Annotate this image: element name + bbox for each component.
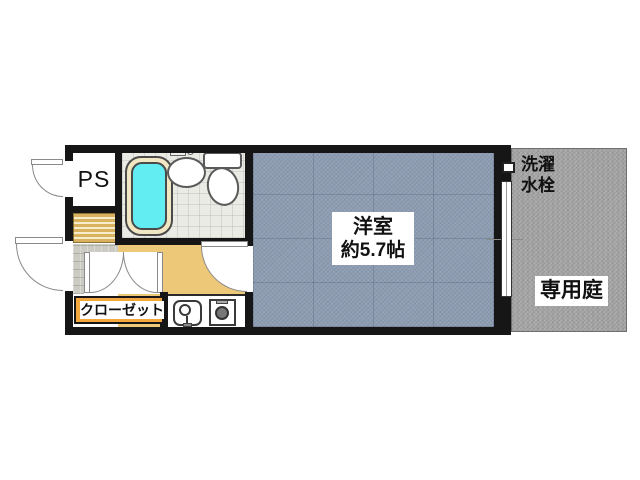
entry-steps bbox=[73, 213, 117, 243]
faucet-stem-icon bbox=[186, 316, 188, 323]
wall-divider-upper bbox=[245, 153, 253, 246]
closet-label-box: クローゼット bbox=[74, 296, 164, 324]
washbasin-icon bbox=[167, 157, 206, 188]
bathtub-icon bbox=[125, 156, 173, 236]
ps-door-swing-arc bbox=[32, 165, 63, 197]
stove-icon bbox=[209, 299, 236, 326]
laundry-faucet-label: 洗濯 水栓 bbox=[521, 154, 555, 196]
wall-ps-bottom bbox=[65, 206, 122, 213]
wall-left-middle bbox=[65, 197, 73, 241]
closet-label: クローゼット bbox=[80, 301, 164, 319]
entrance-door-panel bbox=[15, 237, 63, 244]
closet-door-right-panel bbox=[157, 252, 163, 293]
kitchen-door-panel bbox=[201, 241, 248, 247]
window-sash-line bbox=[506, 182, 507, 296]
entrance-door-swing-arc bbox=[16, 244, 63, 291]
bathtub-water bbox=[131, 162, 167, 230]
faucet-head-icon bbox=[179, 304, 191, 316]
private-garden-label: 専用庭 bbox=[535, 276, 608, 306]
stove-panel-icon bbox=[216, 300, 228, 304]
pipe-space-label: PS bbox=[73, 153, 115, 206]
laundry-faucet-icon bbox=[502, 162, 515, 173]
window-icon bbox=[501, 181, 512, 297]
laundry-faucet-label-line2: 水栓 bbox=[521, 175, 555, 196]
wall-bottom bbox=[65, 327, 511, 335]
wall-top bbox=[65, 145, 511, 153]
wall-ps-right bbox=[115, 153, 122, 245]
laundry-faucet-label-line1: 洗濯 bbox=[521, 154, 555, 175]
western-room-size: 約5.7帖 bbox=[334, 239, 412, 262]
western-room-name: 洋室 bbox=[334, 215, 412, 239]
western-room-label-box: 洋室 約5.7帖 bbox=[332, 212, 414, 265]
kitchen-sink-icon bbox=[173, 300, 202, 326]
wall-left-lower bbox=[65, 291, 73, 335]
wall-left-upper bbox=[65, 145, 73, 161]
floor-plan: 洗濯 水栓 専用庭 PS bbox=[0, 0, 640, 480]
kitchen-counter bbox=[166, 294, 245, 327]
private-garden-area: 洗濯 水栓 専用庭 bbox=[511, 148, 627, 332]
wall-divider-lower bbox=[245, 292, 253, 327]
stove-burner-icon bbox=[215, 306, 229, 320]
